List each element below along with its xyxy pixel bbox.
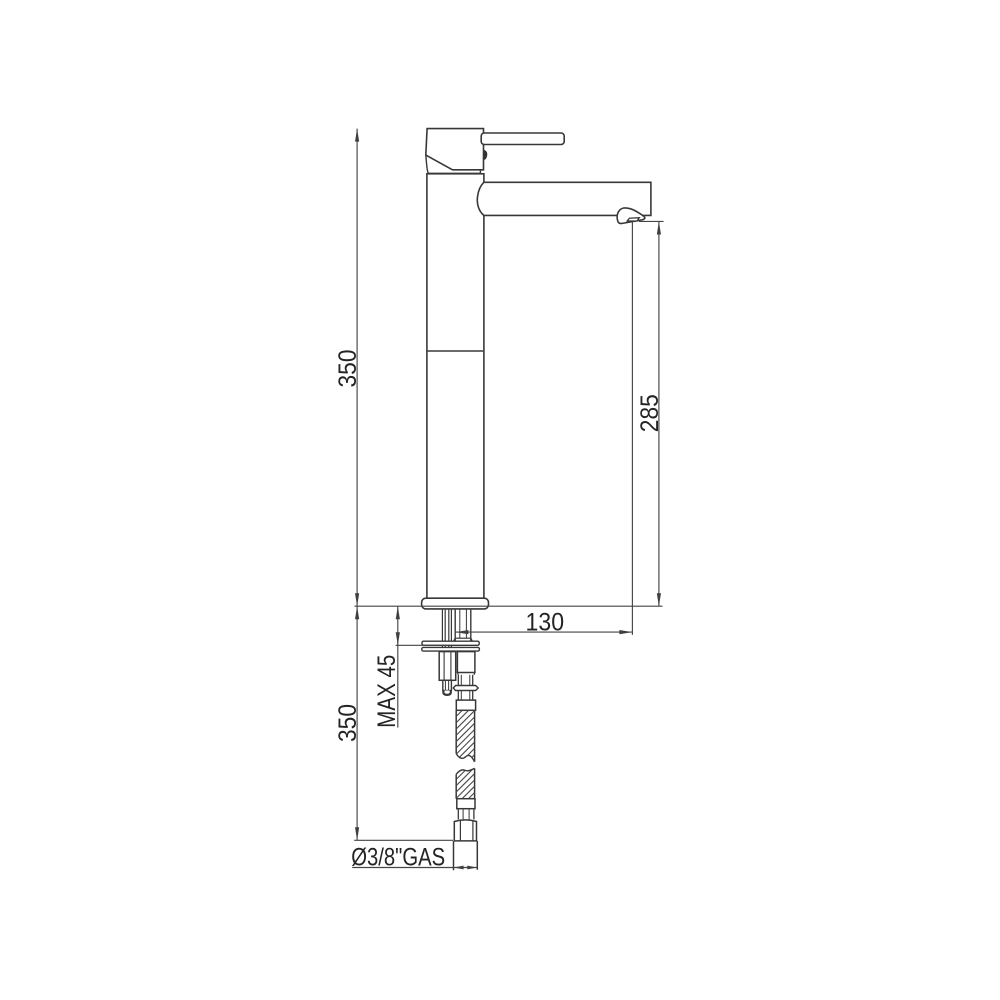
svg-text:MAX 45: MAX 45 (373, 655, 401, 728)
svg-text:350: 350 (334, 704, 362, 742)
svg-text:285: 285 (636, 394, 664, 432)
svg-text:350: 350 (334, 350, 362, 388)
svg-text:130: 130 (526, 609, 565, 637)
svg-text:Ø3/8"GAS: Ø3/8"GAS (351, 843, 445, 871)
